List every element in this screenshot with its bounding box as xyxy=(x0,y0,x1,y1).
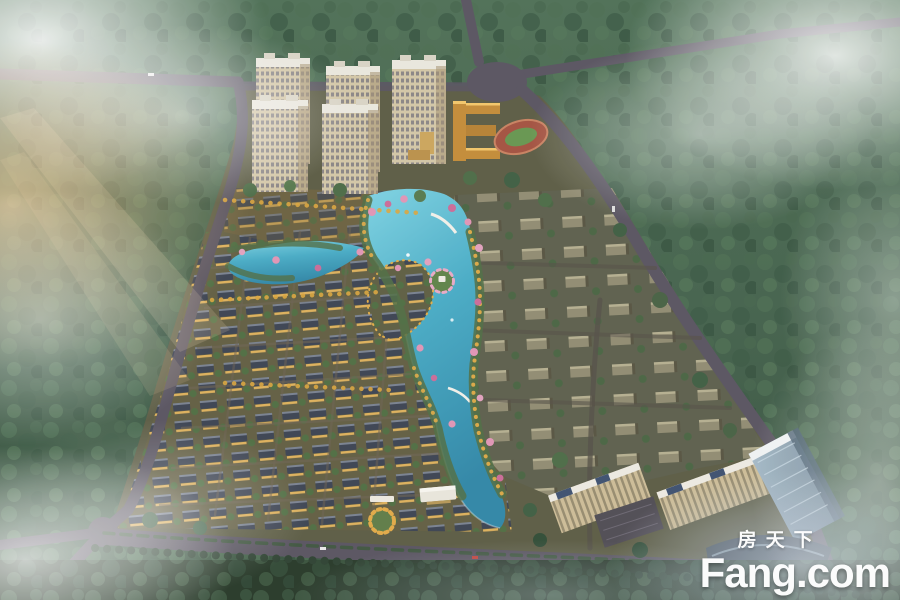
scene-svg xyxy=(0,0,900,600)
fog-layer xyxy=(0,0,900,600)
aerial-rendering: 房天下 Fang.com xyxy=(0,0,900,600)
